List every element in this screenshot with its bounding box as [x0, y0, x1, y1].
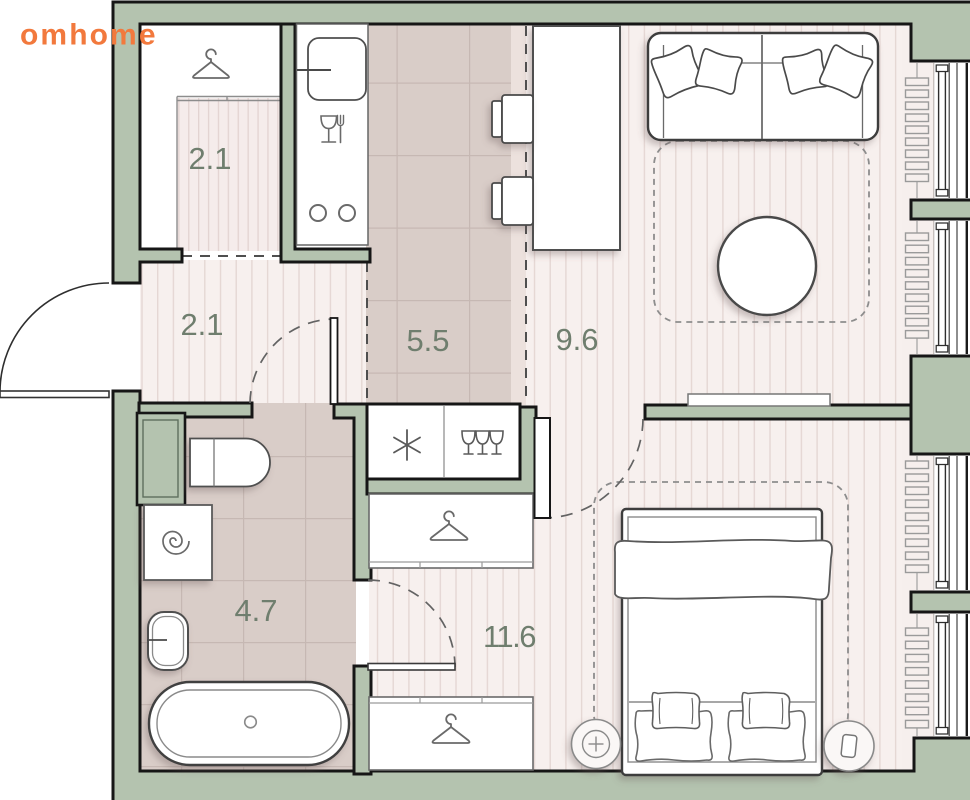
svg-text:9.6: 9.6: [555, 322, 598, 357]
svg-text:11.6: 11.6: [483, 619, 535, 654]
svg-text:2.1: 2.1: [180, 307, 223, 342]
svg-text:4.7: 4.7: [234, 593, 277, 628]
svg-text:5.5: 5.5: [406, 323, 449, 358]
svg-text:omhome: omhome: [20, 19, 158, 52]
svg-text:2.1: 2.1: [188, 141, 231, 176]
